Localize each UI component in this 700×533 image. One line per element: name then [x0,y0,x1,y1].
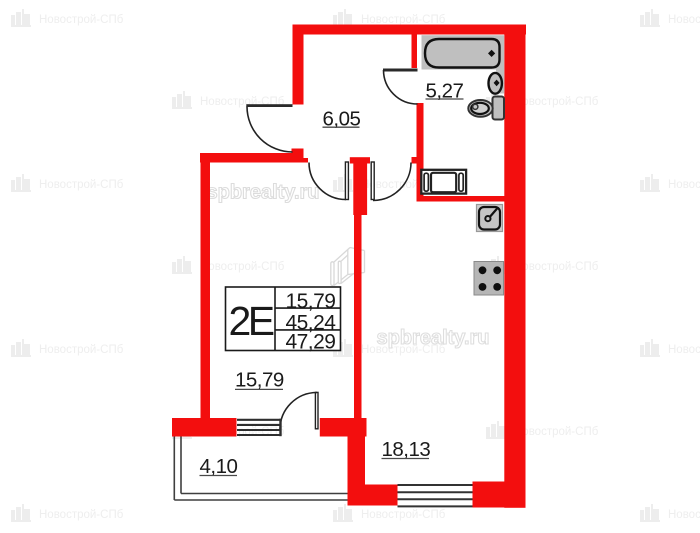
svg-text:spbrealty.ru: spbrealty.ru [377,327,490,349]
svg-text:47,29: 47,29 [285,331,335,354]
svg-text:18,13: 18,13 [382,438,431,461]
svg-text:15,79: 15,79 [285,290,335,313]
svg-text:4,10: 4,10 [200,455,238,478]
svg-text:15,79: 15,79 [235,369,284,392]
svg-text:spbrealty.ru: spbrealty.ru [207,182,320,204]
svg-text:2Е: 2Е [229,298,274,344]
